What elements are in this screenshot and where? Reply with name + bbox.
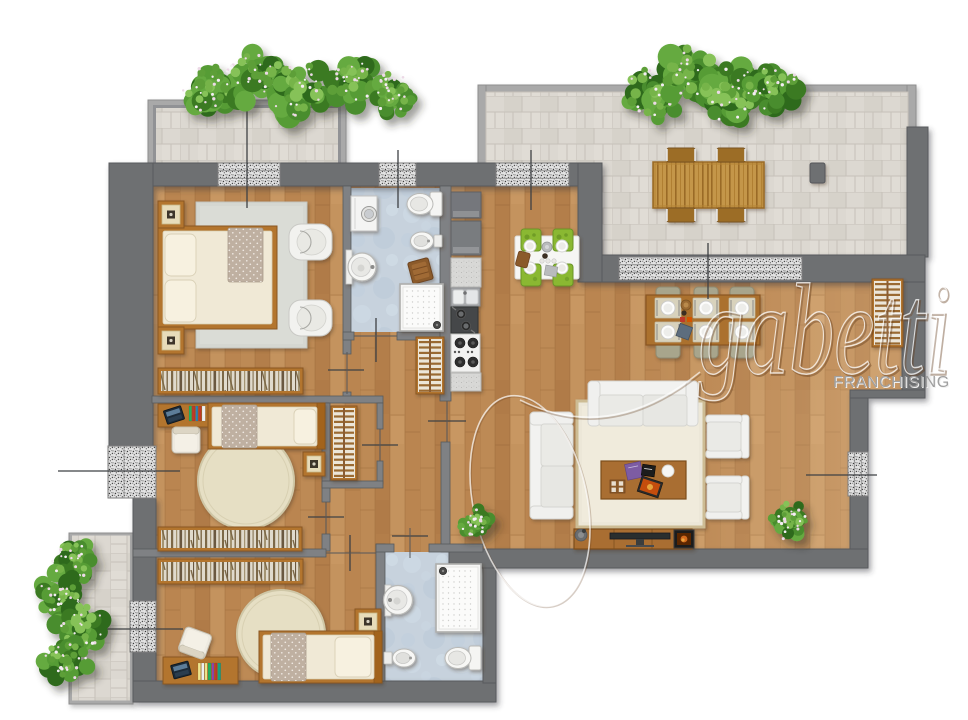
svg-text:FRANCHISING: FRANCHISING bbox=[833, 374, 950, 391]
